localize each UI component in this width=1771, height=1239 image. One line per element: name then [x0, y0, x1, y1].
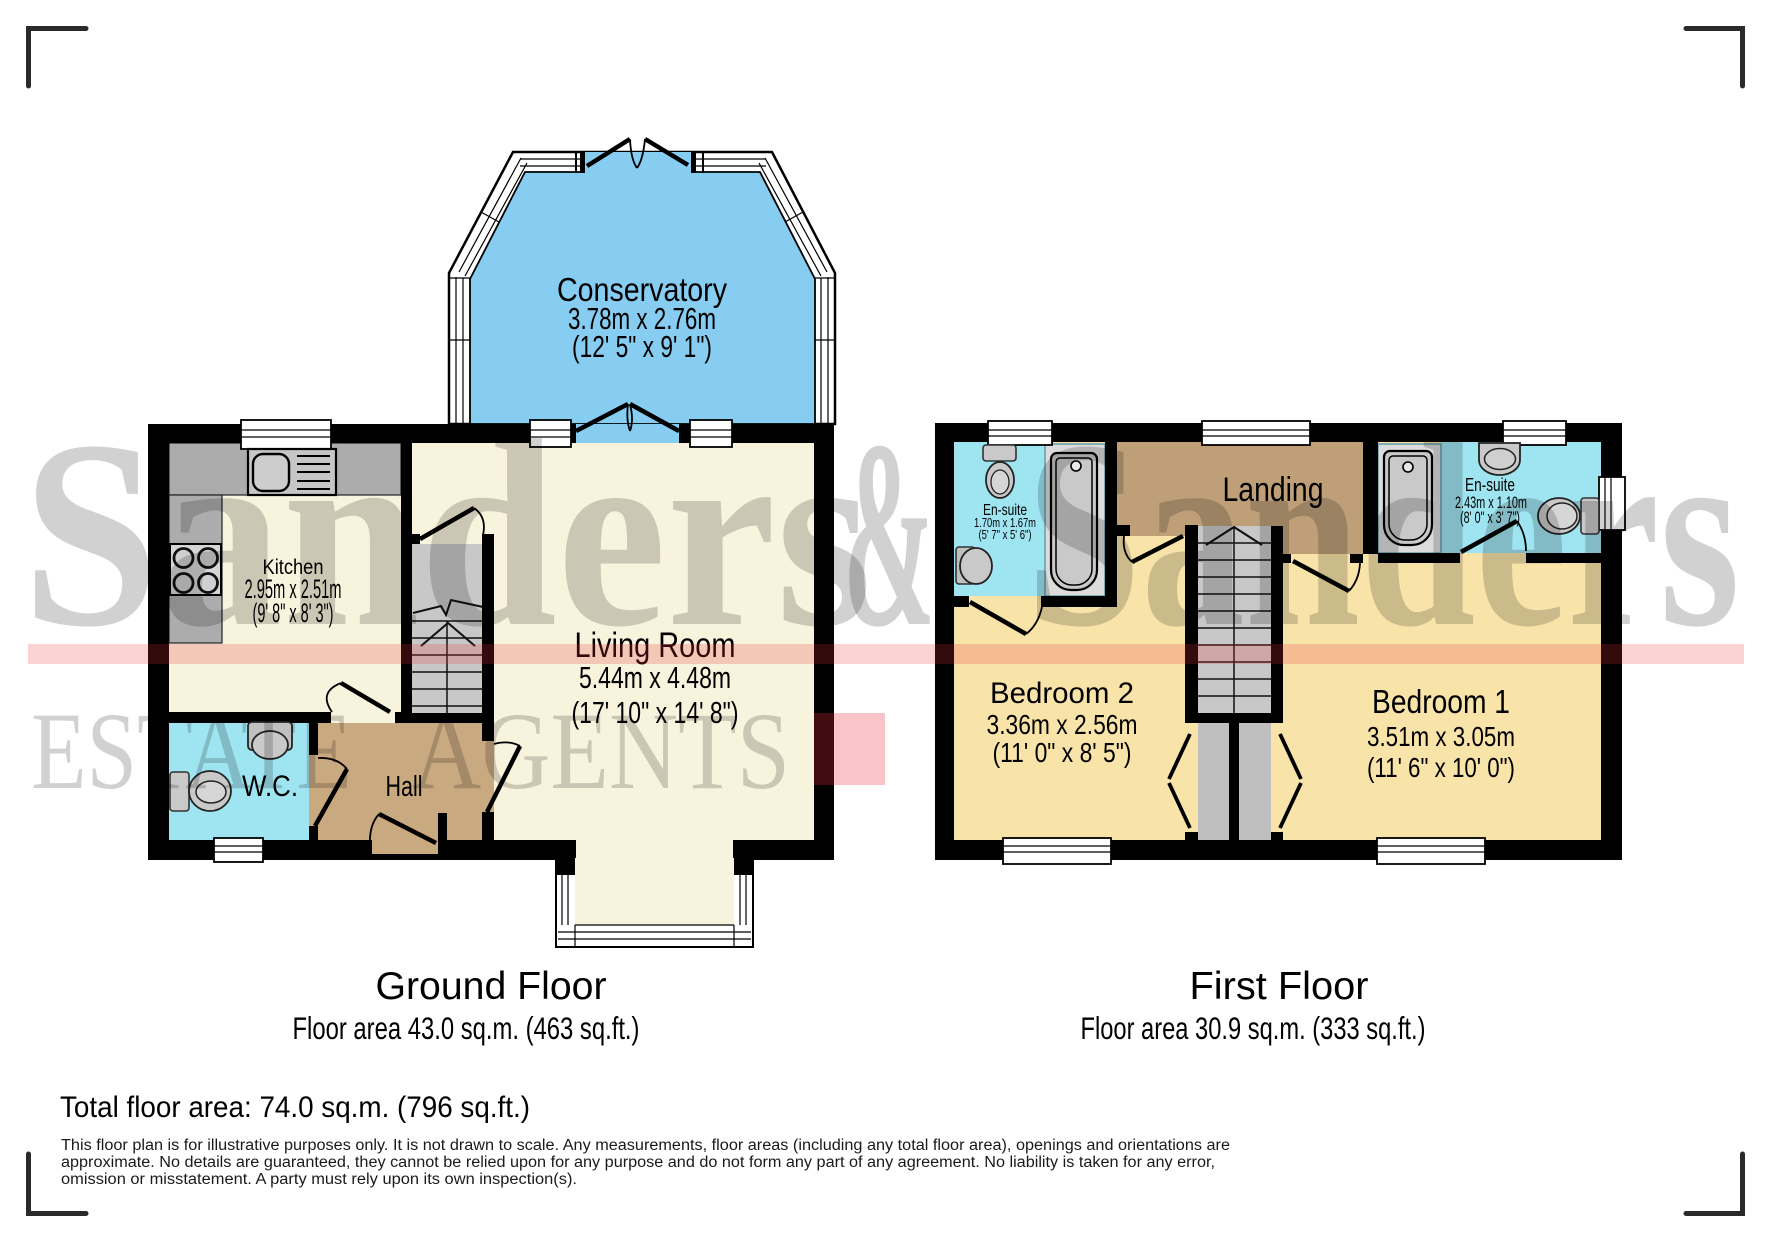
svg-text:Bedroom 1: Bedroom 1: [1372, 683, 1510, 720]
svg-text:&: &: [843, 385, 935, 682]
svg-text:(12' 5" x 9' 1"): (12' 5" x 9' 1"): [572, 329, 712, 364]
svg-text:Floor area 30.9 sq.m. (333 sq.: Floor area 30.9 sq.m. (333 sq.ft.): [1081, 1010, 1426, 1046]
svg-text:(5' 7" x 5' 6"): (5' 7" x 5' 6"): [979, 528, 1032, 542]
svg-text:First Floor: First Floor: [1190, 965, 1369, 1008]
svg-text:Ground Floor: Ground Floor: [376, 965, 607, 1008]
svg-text:Floor area 43.0 sq.m. (463 sq.: Floor area 43.0 sq.m. (463 sq.ft.): [293, 1010, 640, 1046]
svg-text:This floor plan is for illustr: This floor plan is for illustrative purp…: [61, 1137, 1230, 1154]
svg-text:3.51m x 3.05m: 3.51m x 3.05m: [1367, 721, 1515, 752]
svg-text:ESTATE: ESTATE: [31, 690, 352, 812]
svg-text:Total floor area: 74.0 sq.m. (: Total floor area: 74.0 sq.m. (796 sq.ft.…: [60, 1091, 530, 1124]
svg-text:(11' 0" x 8' 5"): (11' 0" x 8' 5"): [993, 737, 1132, 768]
svg-text:Sanders: Sanders: [1026, 385, 1740, 682]
svg-text:approximate. No details are gu: approximate. No details are guaranteed, …: [61, 1154, 1215, 1171]
svg-text:Sanders: Sanders: [22, 385, 872, 682]
svg-text:3.36m x 2.56m: 3.36m x 2.56m: [987, 709, 1138, 740]
svg-text:omission or misstatement. A pa: omission or misstatement. A party must r…: [61, 1171, 577, 1188]
svg-text:AGENTS: AGENTS: [412, 690, 790, 812]
svg-text:(11' 6" x 10' 0"): (11' 6" x 10' 0"): [1367, 752, 1515, 783]
